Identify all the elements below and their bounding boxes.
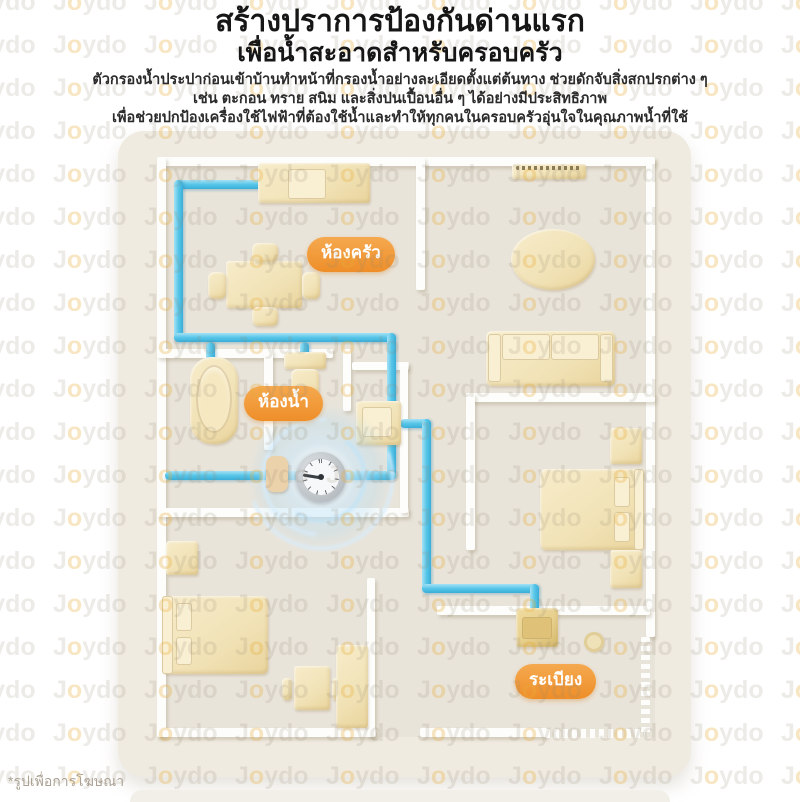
watermark-text: Joydo xyxy=(690,461,764,490)
bed-pillow xyxy=(176,603,192,631)
watermark-text: Joydo xyxy=(781,332,800,361)
watermark-text: Joydo xyxy=(781,719,800,748)
water-pipe-segment xyxy=(174,333,395,342)
dining-chair xyxy=(252,307,278,326)
watermark-text: Joydo xyxy=(0,547,36,576)
wardrobe xyxy=(336,645,368,728)
watermark-text: Joydo xyxy=(53,590,127,619)
dining-chair xyxy=(208,272,226,299)
dining-chair xyxy=(302,272,320,299)
watermark-text: Joydo xyxy=(781,676,800,705)
dining-chair xyxy=(252,243,278,262)
bed-headboard xyxy=(634,469,644,550)
watermark-text: Joydo xyxy=(781,246,800,275)
watermark-text: Joydo xyxy=(53,246,127,275)
room-label-kitchen: ห้องครัว xyxy=(307,237,395,272)
wall-toilet-right xyxy=(343,349,351,411)
sofa-armrest xyxy=(488,334,501,382)
watermark-text: Joydo xyxy=(53,676,127,705)
page-subtitle: เพื่อน้ำสะอาดสำหรับครอบครัว xyxy=(0,38,800,69)
watermark-text: Joydo xyxy=(690,418,764,447)
watermark-text: Joydo xyxy=(690,719,764,748)
watermark-text: Joydo xyxy=(690,633,764,662)
watermark-text: Joydo xyxy=(53,504,127,533)
watermark-text: Joydo xyxy=(0,289,36,318)
ac-unit xyxy=(512,164,586,179)
watermark-text: Joydo xyxy=(0,676,36,705)
watermark-text: Joydo xyxy=(0,375,36,404)
watermark-text: Joydo xyxy=(690,289,764,318)
watermark-text: Joydo xyxy=(0,590,36,619)
description-line: เช่น ตะกอน ทราย สนิม และสิ่งปนเปื้อนอื่น… xyxy=(0,90,800,109)
nightstand xyxy=(610,550,642,588)
watermark-text: Joydo xyxy=(781,418,800,447)
watermark-text: Joydo xyxy=(781,375,800,404)
water-pipe-segment xyxy=(174,180,183,342)
pipe-connector xyxy=(266,456,288,492)
watermark-text: Joydo xyxy=(0,461,36,490)
water-pipe-segment xyxy=(422,419,431,593)
ad-disclaimer: *รูปเพื่อการโฆษณา xyxy=(8,771,124,793)
watermark-text: Joydo xyxy=(53,332,127,361)
watermark-text: Joydo xyxy=(0,418,36,447)
nightstand xyxy=(610,428,642,464)
watermark-text: Joydo xyxy=(0,203,36,232)
watermark-text: Joydo xyxy=(781,633,800,662)
bed-pillow xyxy=(176,637,192,665)
promo-page: สร้างปราการป้องกันด่านแรก เพื่อน้ำสะอาดส… xyxy=(0,0,800,800)
wall-central-lower xyxy=(400,362,408,513)
coffee-table xyxy=(511,229,595,290)
watermark-text: Joydo xyxy=(690,762,764,791)
desk xyxy=(294,666,330,710)
sofa-cushion xyxy=(502,334,550,360)
washing-machine xyxy=(516,608,558,647)
watermark-text: Joydo xyxy=(53,461,127,490)
watermark-text: Joydo xyxy=(53,418,127,447)
water-pipe-segment xyxy=(422,584,539,593)
watermark-text: Joydo xyxy=(781,590,800,619)
watermark-text: Joydo xyxy=(690,332,764,361)
watermark-text: Joydo xyxy=(0,633,36,662)
bed-pillow xyxy=(614,477,630,507)
watermark-text: Joydo xyxy=(781,203,800,232)
page-title: สร้างปราการป้องกันด่านแรก xyxy=(0,4,800,40)
dining-table xyxy=(226,261,302,308)
watermark-text: Joydo xyxy=(690,203,764,232)
balcony-railing-right xyxy=(641,637,650,733)
balcony-railing-bottom xyxy=(545,729,645,738)
watermark-text: Joydo xyxy=(0,246,36,275)
bed-pillow xyxy=(614,512,630,542)
description-line: ตัวกรองน้ำประปาก่อนเข้าบ้านทำหน้าที่กรอง… xyxy=(0,71,800,90)
wall-central-upper xyxy=(416,157,425,290)
watermark-text: Joydo xyxy=(53,633,127,662)
watermark-text: Joydo xyxy=(0,332,36,361)
watermark-text: Joydo xyxy=(690,590,764,619)
watermark-text: Joydo xyxy=(690,547,764,576)
wall-balcony-bottom xyxy=(420,728,547,737)
watermark-text: Joydo xyxy=(781,504,800,533)
wall-bedroom-divider xyxy=(367,578,375,737)
watermark-text: Joydo xyxy=(0,504,36,533)
bed xyxy=(540,469,644,550)
page-description: ตัวกรองน้ำประปาก่อนเข้าบ้านทำหน้าที่กรอง… xyxy=(0,71,800,128)
watermark-text: Joydo xyxy=(53,289,127,318)
wall-bedroom-top xyxy=(466,393,655,402)
watermark-text: Joydo xyxy=(53,547,127,576)
wall-bedroom-left xyxy=(466,393,475,550)
watermark-text: Joydo xyxy=(781,160,800,189)
room-label-bathroom: ห้องน้ำ xyxy=(244,386,323,421)
watermark-text: Joydo xyxy=(0,719,36,748)
sofa xyxy=(486,331,615,386)
watermark-text: Joydo xyxy=(0,160,36,189)
bed-headboard xyxy=(162,596,173,674)
watermark-text: Joydo xyxy=(690,246,764,275)
description-line: เพื่อช่วยปกป้องเครื่องใช้ไฟฟ้าที่ต้องใช้… xyxy=(0,109,800,128)
watermark-text: Joydo xyxy=(781,461,800,490)
watermark-text: Joydo xyxy=(781,289,800,318)
watermark-text: Joydo xyxy=(690,504,764,533)
watermark-text: Joydo xyxy=(53,203,127,232)
washing-machine-lid xyxy=(522,617,552,639)
sofa-armrest xyxy=(600,334,613,382)
bed xyxy=(162,596,268,674)
bathtub-basin xyxy=(196,365,232,433)
floor-drain xyxy=(584,632,604,652)
room-label-balcony: ระเบียง xyxy=(515,664,596,699)
gauge-hub xyxy=(318,474,324,480)
next-section-card xyxy=(130,790,670,802)
kitchen-sink xyxy=(288,169,326,199)
sofa-cushion xyxy=(551,334,599,360)
watermark-text: Joydo xyxy=(690,676,764,705)
ac-vents xyxy=(516,166,582,170)
watermark-text: Joydo xyxy=(781,547,800,576)
stool xyxy=(282,678,292,700)
water-filter-gauge xyxy=(296,452,346,502)
watermark-text: Joydo xyxy=(781,762,800,791)
wall-bottom-left xyxy=(157,728,376,737)
watermark-text: Joydo xyxy=(53,719,127,748)
watermark-text: Joydo xyxy=(690,375,764,404)
toilet-tank xyxy=(284,352,326,369)
watermark-text: Joydo xyxy=(53,375,127,404)
watermark-text: Joydo xyxy=(690,160,764,189)
watermark-text: Joydo xyxy=(53,160,127,189)
nightstand xyxy=(166,541,198,575)
